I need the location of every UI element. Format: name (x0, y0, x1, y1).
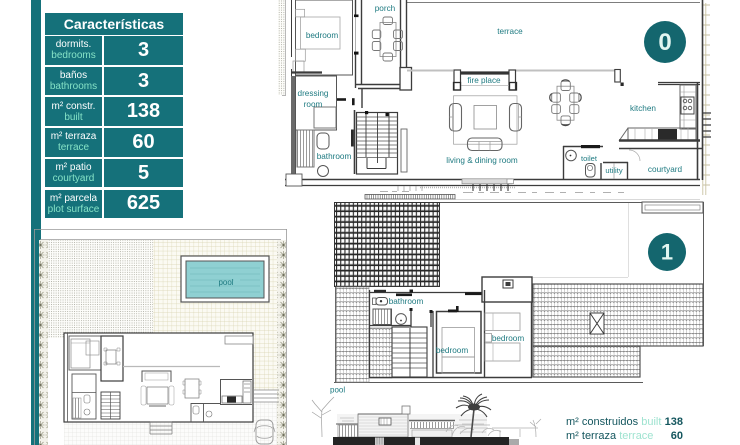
svg-text:room: room (304, 100, 323, 109)
svg-text:living & dining room: living & dining room (446, 156, 518, 165)
svg-text:utility: utility (605, 166, 623, 175)
svg-text:kitchen: kitchen (630, 104, 656, 113)
svg-text:pool: pool (218, 278, 233, 287)
svg-text:bedroom: bedroom (436, 346, 468, 355)
svg-text:m² terraza terrace: m² terraza terrace (566, 430, 653, 442)
svg-text:terrace: terrace (497, 27, 523, 36)
svg-text:60: 60 (671, 430, 683, 442)
svg-text:porch: porch (375, 4, 396, 13)
svg-text:1: 1 (661, 240, 673, 265)
svg-text:0: 0 (658, 29, 671, 56)
svg-text:courtyard: courtyard (648, 165, 683, 174)
svg-text:bathroom: bathroom (317, 152, 352, 161)
svg-text:bedroom: bedroom (492, 334, 524, 343)
svg-text:toilet: toilet (581, 154, 598, 163)
svg-text:bedroom: bedroom (306, 31, 338, 40)
svg-text:pool: pool (330, 386, 345, 395)
svg-text:m² construidos built: m² construidos built (566, 416, 661, 428)
svg-text:bathroom: bathroom (389, 297, 424, 306)
svg-text:dressing: dressing (298, 89, 329, 98)
svg-text:138: 138 (665, 416, 683, 428)
svg-text:fire place: fire place (467, 76, 501, 85)
